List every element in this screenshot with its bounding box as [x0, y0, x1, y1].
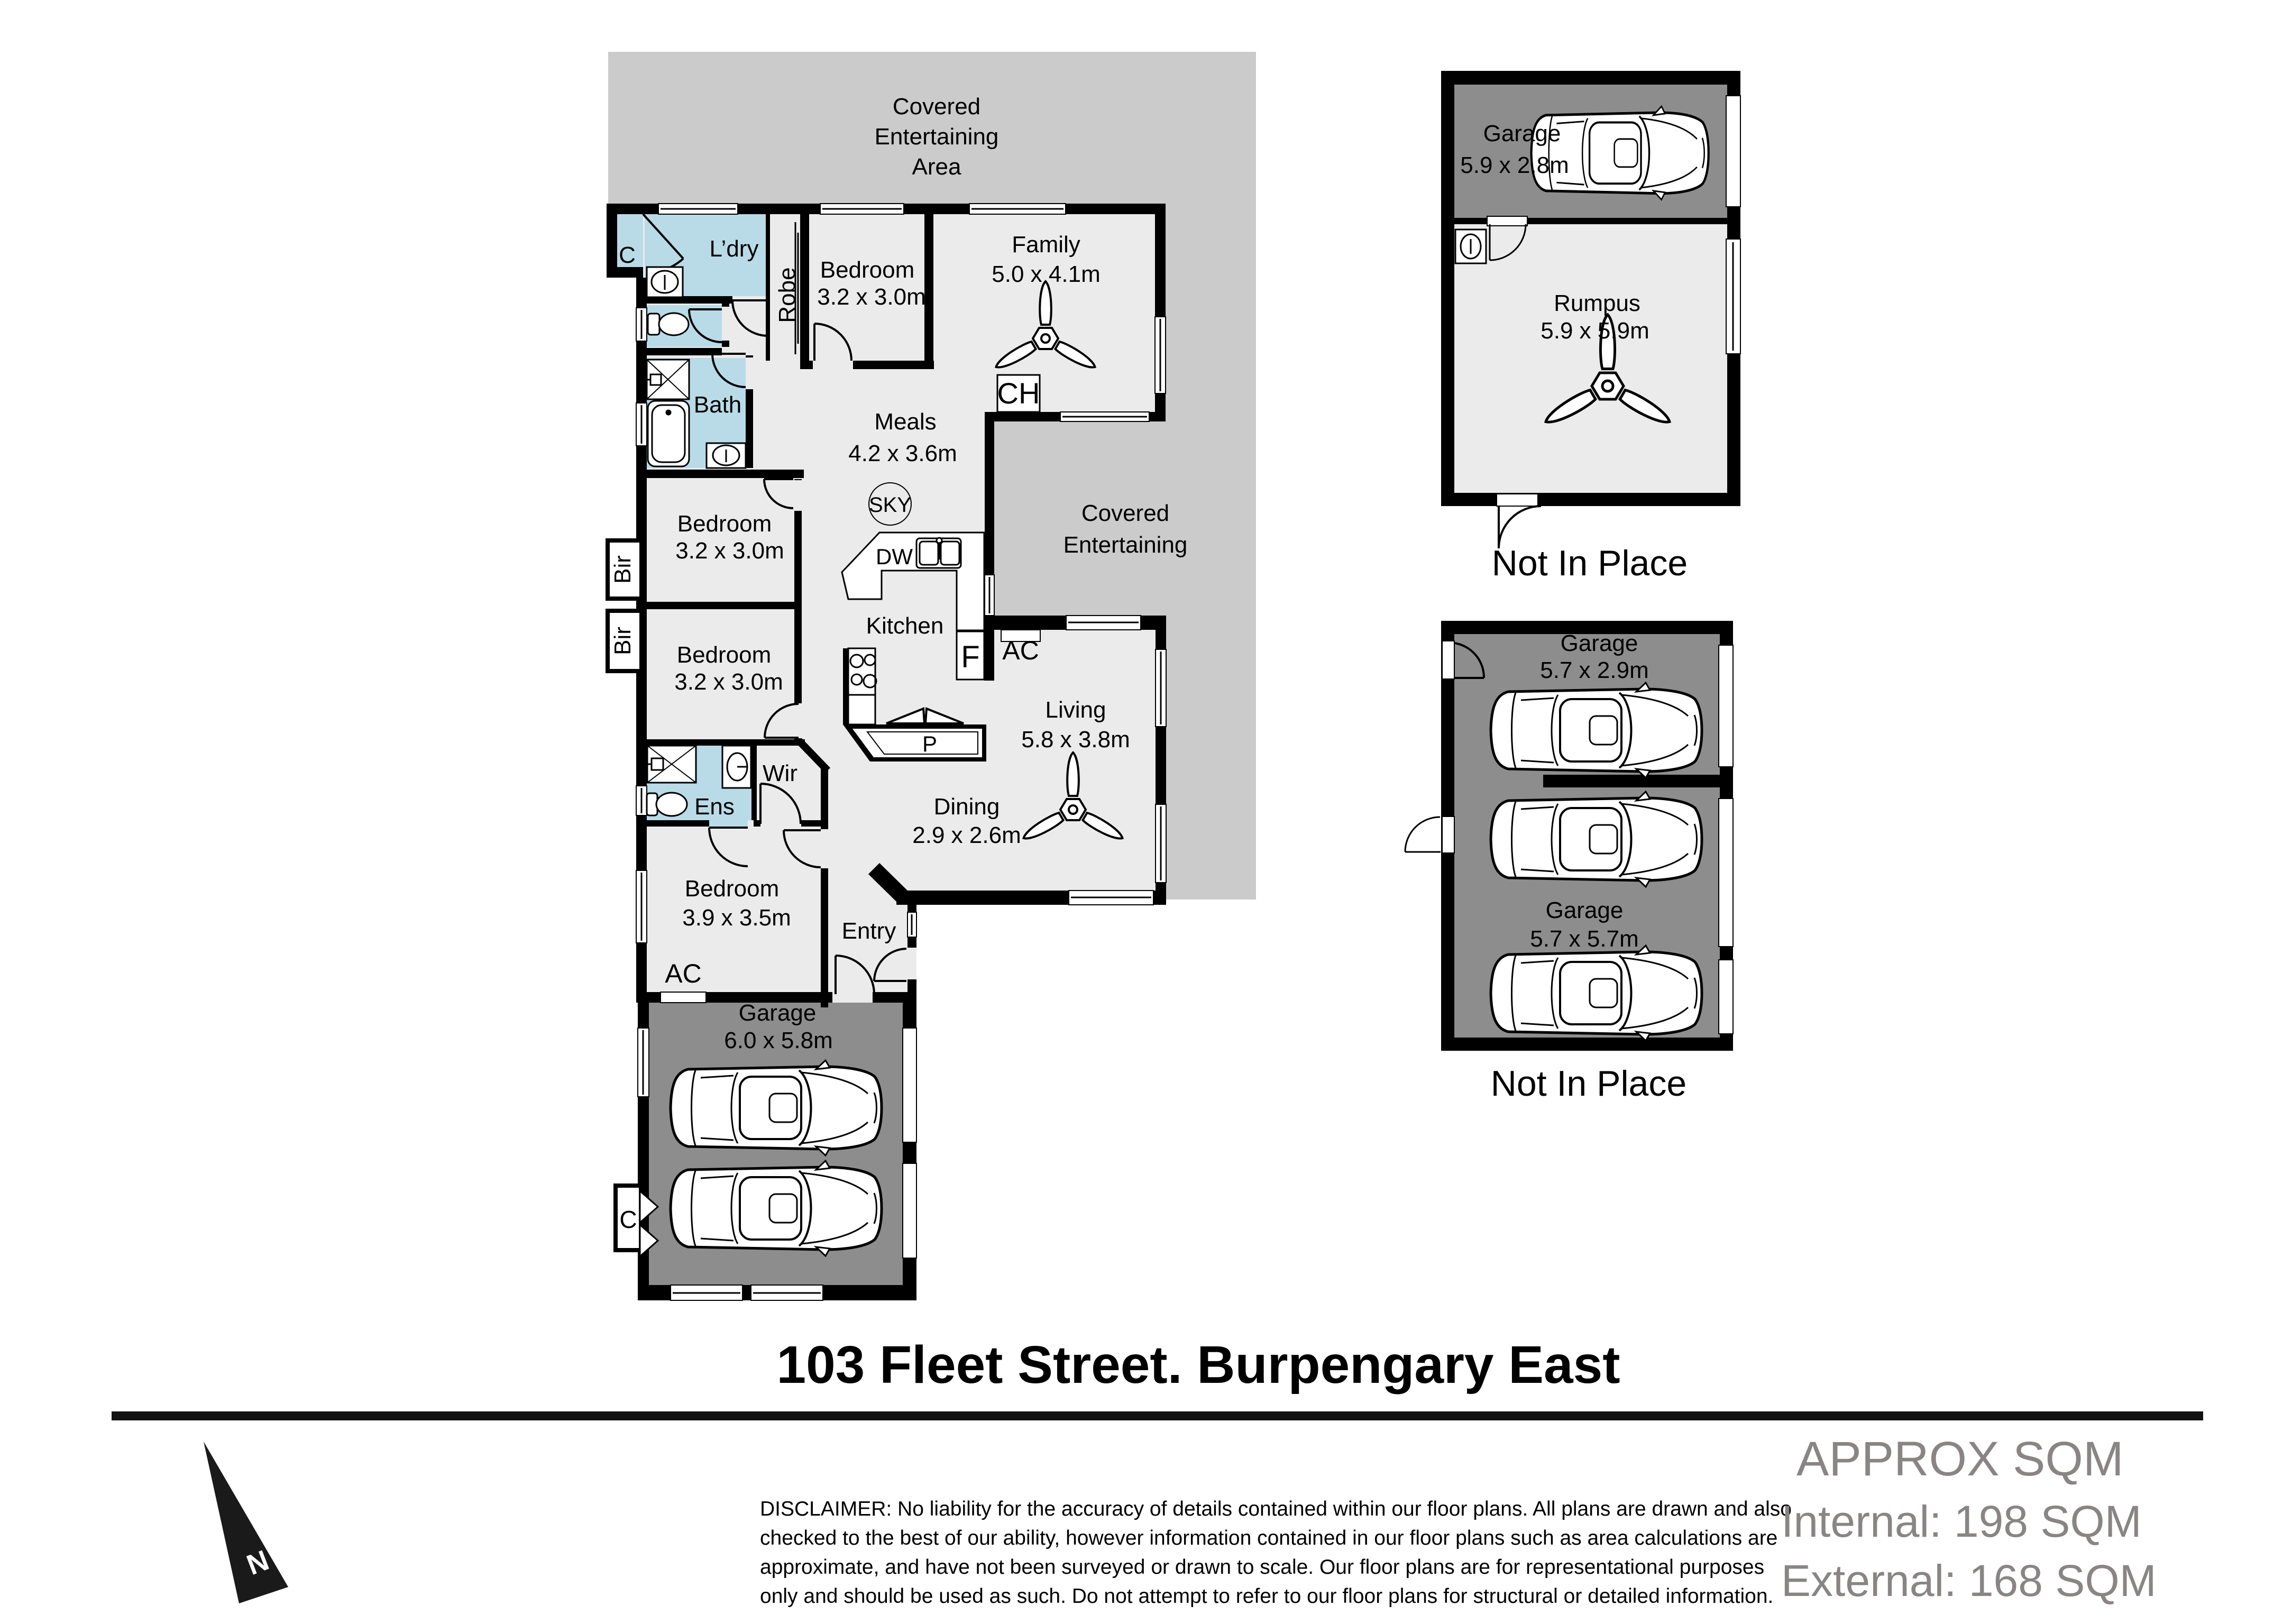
svg-text:Covered: Covered [1081, 500, 1169, 526]
svg-text:3.2 x 3.0m: 3.2 x 3.0m [675, 538, 784, 564]
svg-text:SKY: SKY [869, 493, 911, 517]
svg-text:Ens: Ens [694, 794, 735, 820]
svg-text:Garage: Garage [739, 1000, 817, 1026]
svg-text:Robe: Robe [774, 267, 800, 323]
svg-text:Living: Living [1046, 697, 1106, 723]
svg-text:Area: Area [912, 154, 961, 180]
svg-text:External: 168 SQM: External: 168 SQM [1781, 1556, 2157, 1605]
svg-text:Dining: Dining [934, 794, 1000, 820]
svg-text:5.9 x 5.9m: 5.9 x 5.9m [1541, 318, 1649, 344]
svg-text:Internal: 198 SQM: Internal: 198 SQM [1781, 1497, 2142, 1546]
svg-text:L’dry: L’dry [710, 236, 759, 262]
svg-text:Bath: Bath [694, 392, 742, 418]
svg-text:Family: Family [1012, 232, 1080, 258]
svg-text:C: C [619, 1206, 637, 1233]
svg-text:Covered: Covered [893, 94, 980, 120]
svg-text:6.0 x 5.8m: 6.0 x 5.8m [724, 1027, 832, 1053]
svg-text:Entry: Entry [842, 918, 896, 944]
svg-text:5.9 x 2.8m: 5.9 x 2.8m [1460, 152, 1569, 178]
svg-text:C: C [619, 242, 636, 268]
svg-text:AC: AC [665, 959, 701, 988]
svg-text:Bedroom: Bedroom [677, 642, 772, 668]
svg-text:5.8 x 3.8m: 5.8 x 3.8m [1021, 727, 1130, 753]
svg-text:Entertaining: Entertaining [875, 124, 999, 150]
svg-text:4.2 x 3.6m: 4.2 x 3.6m [848, 441, 957, 466]
svg-text:Garage: Garage [1561, 630, 1638, 656]
svg-text:Bedroom: Bedroom [677, 511, 772, 537]
svg-text:Entertaining: Entertaining [1064, 532, 1188, 558]
svg-text:3.9 x 3.5m: 3.9 x 3.5m [682, 905, 791, 931]
svg-text:AC: AC [1002, 636, 1039, 665]
svg-text:Bir: Bir [610, 555, 636, 584]
svg-text:F: F [961, 640, 979, 674]
svg-text:approximate, and have not been: approximate, and have not been surveyed … [760, 1556, 1764, 1579]
svg-text:3.2 x 3.0m: 3.2 x 3.0m [674, 669, 783, 695]
svg-text:5.7 x 5.7m: 5.7 x 5.7m [1530, 926, 1638, 952]
svg-text:P: P [922, 731, 937, 756]
svg-text:Not In Place: Not In Place [1492, 543, 1688, 583]
svg-text:only and should be used as suc: only and should be used as such. Do not … [760, 1585, 1773, 1608]
svg-text:Garage: Garage [1546, 897, 1624, 923]
svg-text:2.9 x 2.6m: 2.9 x 2.6m [912, 822, 1021, 848]
svg-text:Wir: Wir [763, 760, 797, 786]
svg-text:Kitchen: Kitchen [866, 613, 944, 639]
svg-text:Bedroom: Bedroom [820, 257, 915, 283]
svg-text:5.7 x 2.9m: 5.7 x 2.9m [1540, 657, 1648, 683]
svg-text:Bedroom: Bedroom [685, 876, 780, 902]
svg-text:5.0 x 4.1m: 5.0 x 4.1m [992, 261, 1100, 287]
svg-text:checked to the best of our abi: checked to the best of our ability, howe… [760, 1527, 1777, 1549]
svg-text:CH: CH [997, 377, 1040, 410]
svg-text:3.2 x 3.0m: 3.2 x 3.0m [817, 284, 925, 310]
svg-text:Rumpus: Rumpus [1554, 290, 1640, 316]
svg-text:Garage: Garage [1483, 121, 1561, 146]
svg-text:DISCLAIMER: No liability for t: DISCLAIMER: No liability for the accurac… [760, 1498, 1792, 1520]
svg-text:Meals: Meals [874, 409, 936, 435]
svg-text:Bir: Bir [610, 627, 636, 655]
svg-text:DW: DW [876, 544, 913, 569]
svg-text:APPROX SQM: APPROX SQM [1796, 1432, 2124, 1486]
svg-text:Not In Place: Not In Place [1491, 1063, 1686, 1104]
svg-text:103 Fleet Street. Burpengary E: 103 Fleet Street. Burpengary East [776, 1335, 1620, 1394]
